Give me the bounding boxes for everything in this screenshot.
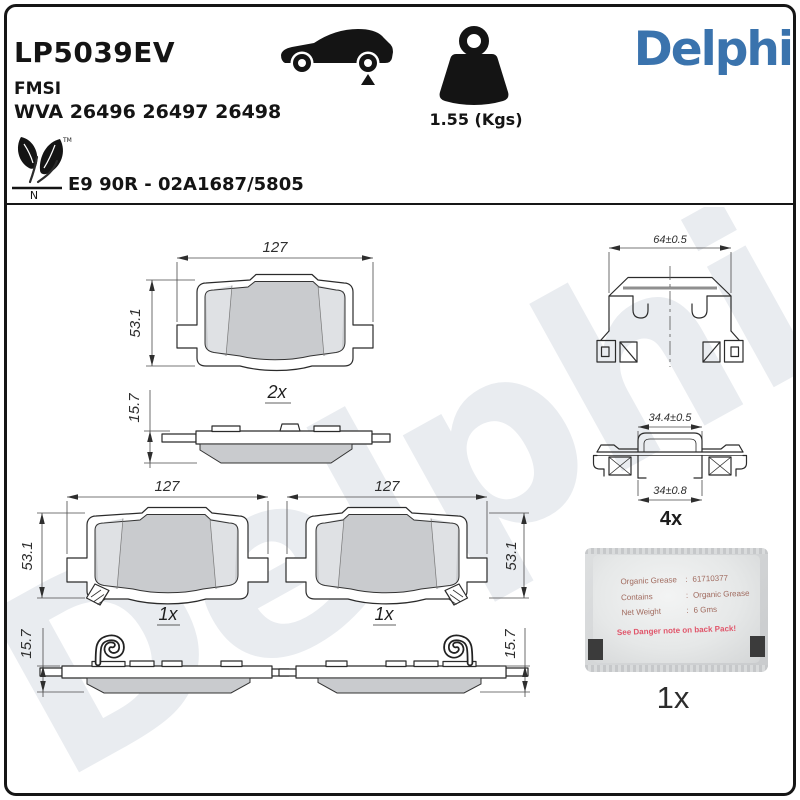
sachet-crimp-bottom: [585, 665, 768, 672]
pad-bottom-left-side-view: [40, 638, 289, 693]
brand-logo: Delphi: [596, 22, 792, 77]
wva-numbers: WVA 26496 26497 26498: [14, 101, 281, 123]
sachet-row-value: Organic Grease: [693, 585, 750, 603]
eco-leaf-icon: TM N: [10, 132, 72, 202]
retainer-clip-drawing: 64±0.5: [597, 234, 743, 367]
dim-height-top-pad: 53.1: [127, 308, 144, 337]
qty-mount-clip: 4x: [660, 508, 682, 530]
grease-sachet: Organic Grease : 61710377 Contains : Org…: [585, 548, 768, 672]
header-separator-line: [5, 203, 795, 205]
pad-bottom-left-thickness-dim: 15.7: [18, 628, 84, 697]
pad-bottom-left-front-view: [67, 508, 268, 606]
pad-top-front-view: [177, 275, 373, 371]
n-mark: N: [30, 189, 38, 202]
dim-mount-clip-top: 34.4±0.5: [649, 412, 693, 424]
dim-mount-clip-bottom: 34±0.8: [653, 485, 687, 497]
sachet-text-block: Organic Grease : 61710377 Contains : Org…: [620, 570, 750, 621]
weight-icon: [434, 26, 514, 110]
qty-top-pad: 2x: [266, 382, 287, 402]
sachet-print-mark-left: [588, 639, 603, 660]
sachet-row-separator: :: [680, 572, 693, 588]
dim-thickness-bl-pad: 15.7: [18, 629, 35, 659]
car-rear-axle-icon: [280, 26, 394, 86]
dim-thickness-top-pad: 15.7: [126, 393, 143, 423]
pad-top-thickness-dim: 15.7: [126, 390, 197, 468]
approval-code: E9 90R - 02A1687/5805: [68, 174, 304, 195]
qty-bm-pad: 1x: [374, 604, 394, 624]
sachet-row-value: 6 Gms: [693, 602, 717, 618]
sachet-row-separator: :: [681, 587, 694, 603]
dim-width-top-pad: 127: [262, 239, 288, 256]
pad-top-side-view: [162, 424, 390, 463]
pad-bottom-middle-front-view: [286, 508, 487, 606]
datasheet-page: Delphi LP5039EV FMSI WVA 26496 26497 264…: [0, 0, 800, 800]
pad-bottom-middle-side-view: [279, 638, 528, 693]
tm-mark: TM: [62, 137, 72, 144]
mount-clip-drawing: 34.4±0.5 34±0.8: [594, 412, 747, 530]
qty-bl-pad: 1x: [158, 604, 178, 624]
dim-width-bl-pad: 127: [154, 478, 180, 495]
sachet-row-separator: :: [681, 603, 694, 619]
sachet-row-value: 61710377: [692, 571, 728, 588]
dim-retainer-clip: 64±0.5: [653, 234, 687, 246]
weight-value: 1.55 (Kgs): [424, 110, 528, 129]
rear-axle-marker: [361, 74, 375, 85]
dim-height-bm-pad: 53.1: [503, 541, 520, 570]
pad-bottom-middle-thickness-dim: 15.7: [480, 628, 530, 697]
dim-thickness-bm-pad: 15.7: [502, 629, 519, 659]
sachet-row-label: Net Weight: [621, 603, 682, 621]
fmsi-label: FMSI: [14, 79, 61, 99]
sachet-crimp-top: [585, 548, 768, 554]
qty-grease-sachet: 1x: [640, 680, 706, 716]
sachet-print-mark-right: [750, 636, 765, 657]
dim-height-bl-pad: 53.1: [19, 541, 36, 570]
dim-width-bm-pad: 127: [374, 478, 400, 495]
part-number: LP5039EV: [14, 36, 175, 69]
